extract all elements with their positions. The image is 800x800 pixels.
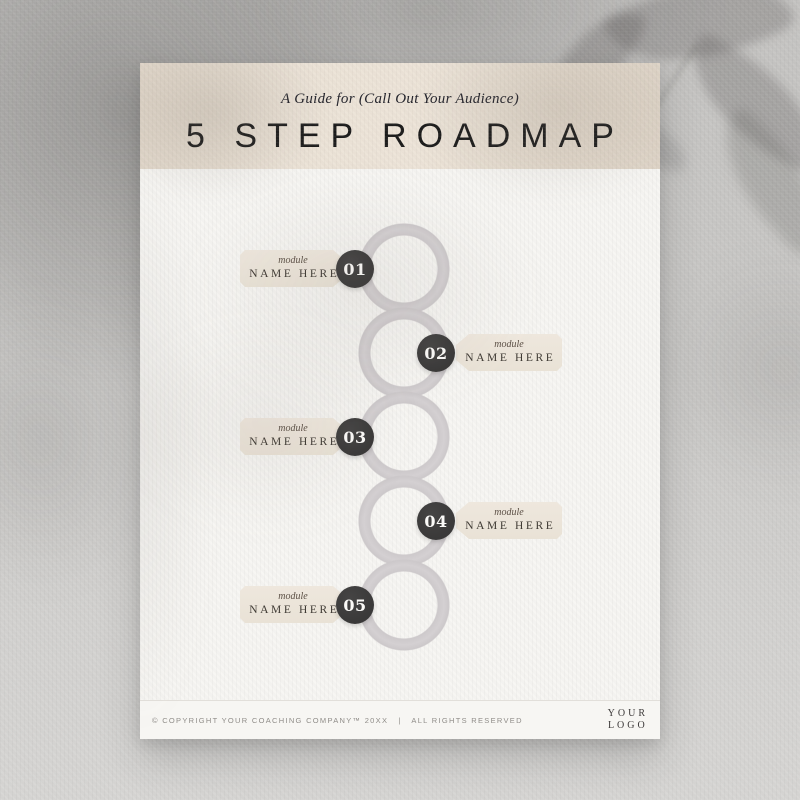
- copyright-text: © COPYRIGHT YOUR COACHING COMPANY™ 20XX …: [152, 716, 523, 725]
- leaf-shadow-icon: [667, 31, 800, 174]
- module-tag-title: NAME HERE: [463, 519, 556, 534]
- roadmap-step-4: module NAME HERE 04: [140, 502, 660, 540]
- module-tag-eyebrow: module: [278, 591, 307, 603]
- shadow-blob-left: [0, 290, 160, 590]
- document-header-band: A Guide for (Call Out Your Audience) 5 S…: [140, 63, 660, 169]
- audience-subtitle: A Guide for (Call Out Your Audience): [140, 63, 660, 108]
- logo-line-2: LOGO: [605, 720, 648, 732]
- your-logo-placeholder: YOUR LOGO: [605, 708, 648, 732]
- module-tag-eyebrow: module: [494, 507, 523, 519]
- roadmap-step-2: module NAME HERE 02: [140, 334, 660, 372]
- step-number-badge: 04: [417, 502, 455, 540]
- page-title: 5 STEP ROADMAP: [140, 117, 660, 156]
- leaf-shadow-icon: [693, 105, 800, 259]
- logo-line-1: YOUR: [605, 708, 648, 720]
- step-number-badge: 05: [336, 586, 374, 624]
- shadow-blob-right: [664, 250, 800, 490]
- module-tag-title: NAME HERE: [463, 351, 556, 366]
- roadmap-step-5: module NAME HERE 05: [140, 586, 660, 624]
- module-tag-title: NAME HERE: [247, 267, 340, 282]
- roadmap-step-3: module NAME HERE 03: [140, 418, 660, 456]
- roadmap-document-page: A Guide for (Call Out Your Audience) 5 S…: [140, 63, 660, 739]
- module-tag-title: NAME HERE: [247, 603, 340, 618]
- module-tag: module NAME HERE: [240, 250, 346, 287]
- step-number-badge: 02: [417, 334, 455, 372]
- module-tag-title: NAME HERE: [247, 435, 340, 450]
- module-tag: module NAME HERE: [240, 418, 346, 455]
- textured-background: A Guide for (Call Out Your Audience) 5 S…: [0, 0, 800, 800]
- module-tag-eyebrow: module: [494, 339, 523, 351]
- step-number-badge: 01: [336, 250, 374, 288]
- module-tag-eyebrow: module: [278, 423, 307, 435]
- module-tag-eyebrow: module: [278, 255, 307, 267]
- module-tag: module NAME HERE: [456, 334, 562, 371]
- step-number-badge: 03: [336, 418, 374, 456]
- module-tag: module NAME HERE: [456, 502, 562, 539]
- module-tag: module NAME HERE: [240, 586, 346, 623]
- roadmap-step-1: module NAME HERE 01: [140, 250, 660, 288]
- document-footer: © COPYRIGHT YOUR COACHING COMPANY™ 20XX …: [140, 700, 660, 739]
